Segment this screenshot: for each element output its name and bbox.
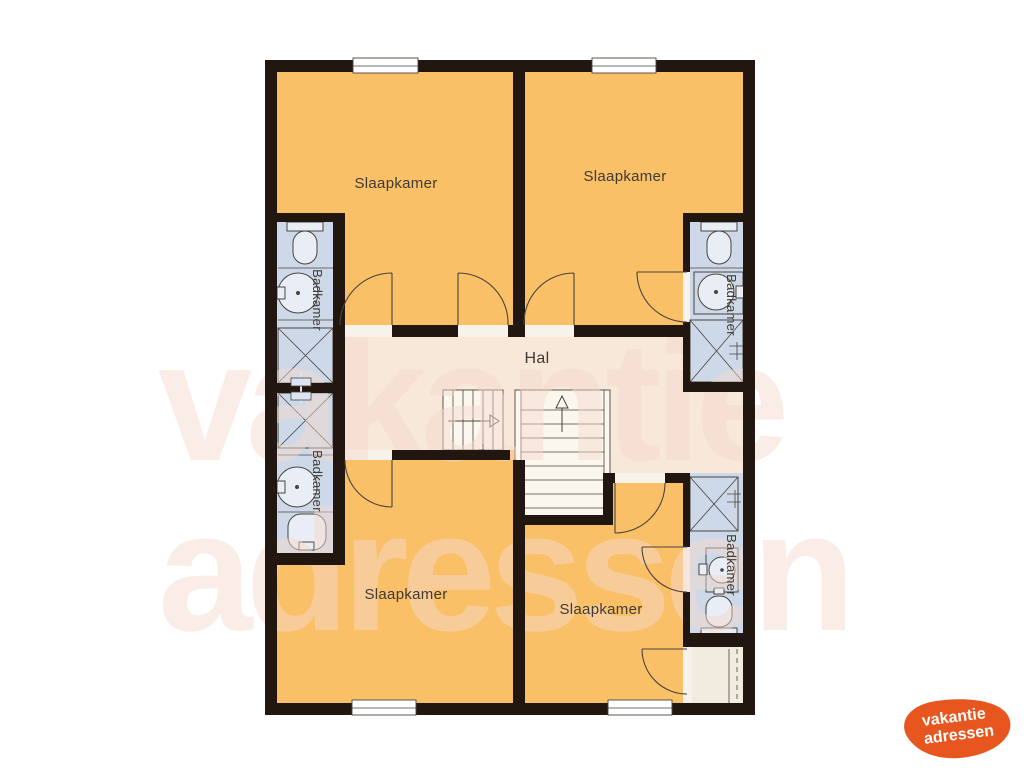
- floor-plan: vakantie adressen: [0, 0, 1024, 768]
- sink-tap-icon: [277, 287, 285, 299]
- label-bathroom-bottom-right: Badkamer: [724, 534, 739, 596]
- toilet-icon: [701, 222, 737, 231]
- label-bathroom-top-left: Badkamer: [310, 269, 325, 331]
- label-bathroom-top-right: Badkamer: [724, 274, 739, 336]
- wall-center-bottom: [513, 460, 525, 709]
- label-bathroom-mid-left: Badkamer: [310, 450, 325, 512]
- window-icon: [353, 58, 418, 73]
- label-bedroom-top-right: Slaapkamer: [583, 168, 666, 185]
- label-hall: Hal: [525, 350, 550, 367]
- wall-center-top: [513, 60, 525, 337]
- floorplan-canvas: vakantie adressen: [0, 0, 1024, 768]
- brand-logo: vakantie adressen: [901, 692, 1013, 764]
- window-icon: [352, 700, 416, 715]
- label-bedroom-top-left: Slaapkamer: [354, 175, 437, 192]
- window-icon: [592, 58, 656, 73]
- toilet-bowl-icon: [293, 231, 317, 264]
- label-bedroom-bottom-right: Slaapkamer: [559, 601, 642, 618]
- outer-wall-right: [743, 60, 755, 715]
- toilet-icon: [287, 222, 323, 231]
- outer-wall-bottom: [265, 703, 755, 715]
- wall-stairwell: [513, 515, 610, 525]
- window-icon: [608, 700, 672, 715]
- label-bedroom-bottom-left: Slaapkamer: [364, 586, 447, 603]
- toilet-bowl-icon: [707, 231, 731, 264]
- outer-wall-top: [265, 60, 755, 72]
